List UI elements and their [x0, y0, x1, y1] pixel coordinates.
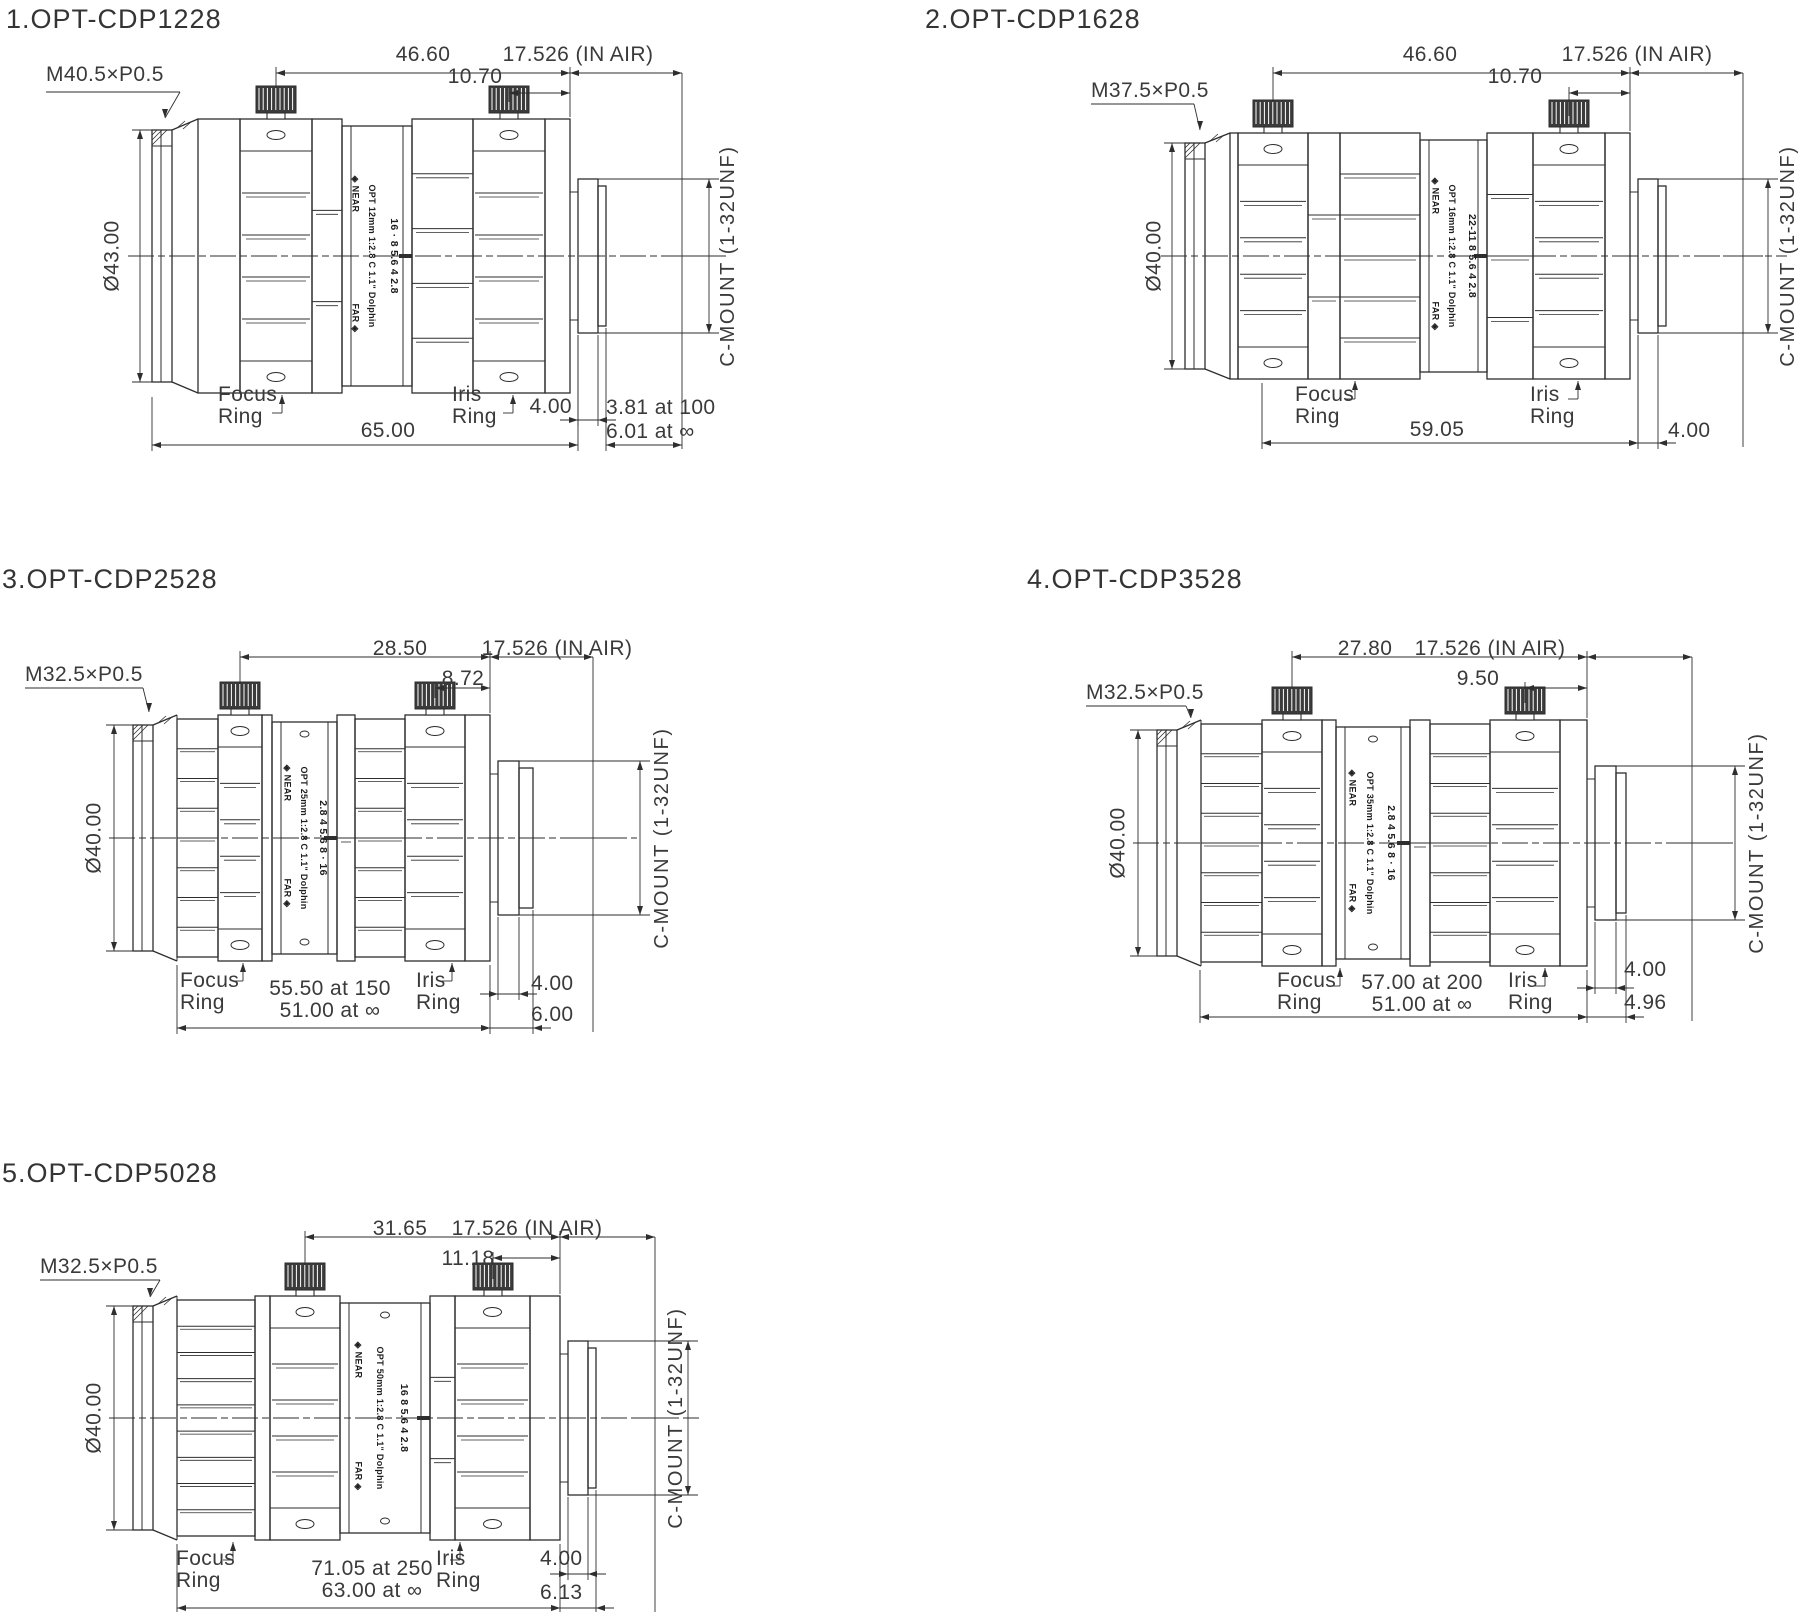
d1-dim-overall-length: 65.00 — [361, 420, 416, 441]
d2-thread-callout: M37.5×P0.5 — [1091, 80, 1209, 101]
d3-dim-overall-length: 55.50 at 150 — [269, 978, 391, 999]
d4-iris-ring-label: Iris — [1508, 970, 1538, 991]
d2-dim-focus-to-flange: 46.60 — [1403, 44, 1458, 65]
d4-dim-overall-length: 57.00 at 200 — [1361, 972, 1483, 993]
d3-title: 3.OPT-CDP2528 — [2, 566, 218, 593]
d5-dim-rear-protrusion: 6.13 — [540, 1582, 582, 1603]
d4-print-model: OPT 35mm 1:2.8 C 1.1" Dolphin — [1365, 771, 1375, 914]
d2-focus-ring-label: Focus — [1295, 384, 1354, 405]
d4-iris-ring-label: Ring — [1508, 992, 1553, 1013]
d2-dim-in-air: 17.526 (IN AIR) — [1562, 44, 1713, 65]
d2-print-near: ◈ NEAR — [1430, 178, 1441, 215]
d3-mount-label: C-MOUNT (1-32UNF) — [652, 727, 672, 948]
d3-dim-flange-width: 4.00 — [531, 973, 573, 994]
d1-dim-back-focus: 6.01 at ∞ — [606, 421, 695, 442]
d4-diameter-label: Ø40.00 — [1108, 807, 1129, 878]
d4-dim-focus-to-flange: 27.80 — [1338, 638, 1393, 659]
d3-dim-focus-to-flange: 28.50 — [373, 638, 428, 659]
d5-dim-iris-to-flange: 11.18 — [442, 1248, 495, 1269]
d3-dim-iris-to-flange: 8.72 — [442, 668, 484, 689]
d5-print-model: OPT 50mm 1:2.8 C 1.1" Dolphin — [375, 1346, 385, 1489]
d1-title: 1.OPT-CDP1228 — [6, 6, 222, 33]
lens-drawing-canvas — [0, 0, 1800, 1612]
d1-dim-back-focus: 3.81 at 100 — [606, 397, 716, 418]
d2-diameter-label: Ø40.00 — [1144, 220, 1165, 291]
d4-dim-rear-protrusion: 4.96 — [1624, 992, 1666, 1013]
d4-dim-overall-length: 51.00 at ∞ — [1372, 994, 1473, 1015]
d1-diameter-label: Ø43.00 — [102, 220, 123, 291]
d4-focus-ring-label: Ring — [1277, 992, 1322, 1013]
d1-focus-ring-label: Focus — [218, 384, 277, 405]
d3-dim-overall-length: 51.00 at ∞ — [280, 1000, 381, 1021]
d2-print-model: OPT 16mm 1:2.8 C 1.1" Dolphin — [1447, 184, 1457, 327]
d5-dim-focus-to-flange: 31.65 — [373, 1218, 428, 1239]
d1-thread-callout: M40.5×P0.5 — [46, 64, 164, 85]
d4-print-near: ◈ NEAR — [1347, 770, 1358, 807]
d5-dim-flange-width: 4.00 — [540, 1548, 582, 1569]
d2-dim-flange-width: 4.00 — [1668, 420, 1710, 441]
d4-thread-callout: M32.5×P0.5 — [1086, 682, 1204, 703]
d3-print-model: OPT 25mm 1:2.8 C 1.1" Dolphin — [299, 766, 309, 909]
d1-print-aperture-scale: 16 · 8 5.6 4 2.8 — [388, 218, 400, 293]
d3-focus-ring-label: Focus — [180, 970, 239, 991]
d2-dim-overall-length: 59.05 — [1410, 419, 1465, 440]
d3-thread-callout: M32.5×P0.5 — [25, 664, 143, 685]
d4-dim-iris-to-flange: 9.50 — [1457, 668, 1499, 689]
d4-focus-ring-label: Focus — [1277, 970, 1336, 991]
d2-focus-ring-label: Ring — [1295, 406, 1340, 427]
d2-iris-ring-label: Iris — [1530, 384, 1560, 405]
d5-print-near: ◈ NEAR — [353, 1342, 364, 1379]
d4-mount-label: C-MOUNT (1-32UNF) — [1747, 732, 1767, 953]
d4-print-aperture-scale: 2.8 4 5.6 8 · 16 — [1385, 805, 1397, 880]
d4-print-far: FAR ◈ — [1347, 884, 1358, 913]
d4-dim-in-air: 17.526 (IN AIR) — [1415, 638, 1566, 659]
d1-focus-ring-label: Ring — [218, 406, 263, 427]
technical-drawing-sheet: 1.OPT-CDP1228 M40.5×P0.5 Ø43.00 46.60 17… — [0, 0, 1800, 1612]
d5-thread-callout: M32.5×P0.5 — [40, 1256, 158, 1277]
d1-dim-flange-width: 4.00 — [530, 396, 572, 417]
d5-print-aperture-scale: 16 8 5.6 4 2.8 — [398, 1384, 410, 1452]
d1-dim-iris-to-flange: 10.70 — [448, 66, 503, 87]
d1-print-far: FAR ◈ — [350, 304, 361, 333]
d5-print-far: FAR ◈ — [353, 1462, 364, 1491]
d3-diameter-label: Ø40.00 — [84, 802, 105, 873]
d3-print-aperture-scale: 2.8 4 5.6 8 · 16 — [317, 800, 329, 875]
d4-dim-flange-width: 4.00 — [1624, 959, 1666, 980]
d3-print-far: FAR ◈ — [282, 879, 293, 908]
d1-iris-ring-label: Iris — [452, 384, 482, 405]
d5-focus-ring-label: Ring — [176, 1570, 221, 1591]
d1-mount-label: C-MOUNT (1-32UNF) — [718, 145, 738, 366]
d5-dim-overall-length: 63.00 at ∞ — [322, 1580, 423, 1601]
d2-print-aperture-scale: 22-11 8 5.6 4 2.8 — [1466, 214, 1478, 298]
d2-iris-ring-label: Ring — [1530, 406, 1575, 427]
d3-dim-rear-protrusion: 6.00 — [531, 1004, 573, 1025]
d5-dim-in-air: 17.526 (IN AIR) — [452, 1218, 603, 1239]
d1-print-model: OPT 12mm 1:2.8 C 1.1" Dolphin — [367, 184, 377, 327]
d5-focus-ring-label: Focus — [176, 1548, 235, 1569]
d1-print-near: ◈ NEAR — [350, 176, 361, 213]
d5-diameter-label: Ø40.00 — [84, 1382, 105, 1453]
d5-title: 5.OPT-CDP5028 — [2, 1160, 218, 1187]
d1-iris-ring-label: Ring — [452, 406, 497, 427]
d1-dim-in-air: 17.526 (IN AIR) — [503, 44, 654, 65]
d3-iris-ring-label: Ring — [416, 992, 461, 1013]
d5-iris-ring-label: Ring — [436, 1570, 481, 1591]
d3-print-near: ◈ NEAR — [282, 765, 293, 802]
d5-dim-overall-length: 71.05 at 250 — [311, 1558, 433, 1579]
d1-dim-focus-to-flange: 46.60 — [396, 44, 451, 65]
d3-iris-ring-label: Iris — [416, 970, 446, 991]
d2-title: 2.OPT-CDP1628 — [925, 6, 1141, 33]
d2-print-far: FAR ◈ — [1430, 302, 1441, 331]
d4-title: 4.OPT-CDP3528 — [1027, 566, 1243, 593]
d2-mount-label: C-MOUNT (1-32UNF) — [1778, 145, 1798, 366]
d5-mount-label: C-MOUNT (1-32UNF) — [666, 1307, 686, 1528]
d3-dim-in-air: 17.526 (IN AIR) — [482, 638, 633, 659]
d3-focus-ring-label: Ring — [180, 992, 225, 1013]
d5-iris-ring-label: Iris — [436, 1548, 466, 1569]
d2-dim-iris-to-flange: 10.70 — [1488, 66, 1543, 87]
